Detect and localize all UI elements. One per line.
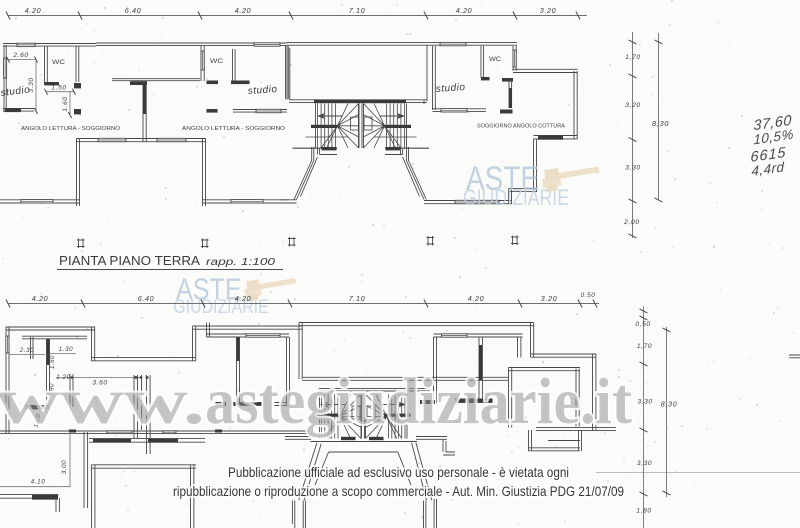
svg-text:PIANTA PIANO TERRA: PIANTA PIANO TERRA [59, 253, 200, 268]
svg-text:1.50: 1.50 [51, 85, 66, 92]
svg-text:8,30: 8,30 [661, 400, 677, 409]
svg-text:8,30: 8,30 [652, 119, 669, 128]
svg-text:2,00: 2,00 [623, 219, 640, 226]
svg-text:1,80: 1,80 [636, 508, 651, 515]
svg-text:1.30: 1.30 [59, 346, 73, 353]
svg-text:3,30: 3,30 [625, 165, 641, 172]
svg-text:www.: www. [0, 365, 205, 438]
svg-text:7.10: 7.10 [349, 6, 365, 15]
svg-text:Pubblicazione ufficiale ad esc: Pubblicazione ufficiale ad esclusivo uso… [228, 465, 569, 480]
svg-text:4.20: 4.20 [32, 294, 48, 303]
svg-text:7.10: 7.10 [349, 294, 365, 303]
svg-text:1,70: 1,70 [637, 343, 652, 350]
svg-text:ANGOLO LETTURA - SOGGIORNO: ANGOLO LETTURA - SOGGIORNO [182, 126, 286, 132]
svg-text:4.20: 4.20 [25, 6, 41, 15]
svg-text:4.20: 4.20 [468, 294, 484, 303]
svg-text:astegiudiziarie.it: astegiudiziarie.it [205, 365, 632, 438]
svg-text:2.30: 2.30 [19, 347, 34, 354]
svg-text:2.60: 2.60 [12, 52, 28, 59]
svg-text:ripubblicazione o riproduzione: ripubblicazione o riproduzione a scopo c… [173, 484, 624, 499]
svg-text:studio: studio [247, 84, 277, 97]
svg-text:0,50: 0,50 [635, 321, 650, 328]
svg-text:4.10: 4.10 [31, 479, 46, 486]
svg-text:4.20: 4.20 [235, 294, 251, 303]
svg-text:6.40: 6.40 [125, 6, 141, 15]
svg-text:1,70: 1,70 [625, 54, 641, 61]
svg-text:3,30: 3,30 [637, 399, 652, 406]
svg-text:ANGOLO LETTURA - SOGGIORNO: ANGOLO LETTURA - SOGGIORNO [21, 126, 121, 132]
svg-text:SOGGIORNO ANGOLO COTTURA: SOGGIORNO ANGOLO COTTURA [477, 124, 565, 130]
svg-text:WC: WC [489, 56, 502, 63]
svg-text:3,30: 3,30 [637, 460, 652, 467]
svg-text:4.20: 4.20 [235, 6, 251, 15]
svg-text:rapp. 1:100: rapp. 1:100 [206, 257, 276, 268]
svg-text:WC: WC [52, 59, 66, 66]
svg-text:studio: studio [435, 82, 465, 95]
svg-text:WC: WC [210, 58, 224, 65]
svg-text:1.60: 1.60 [62, 96, 69, 111]
svg-text:3.00: 3.00 [61, 460, 68, 474]
svg-text:4.20: 4.20 [456, 6, 472, 15]
svg-text:3,20: 3,20 [625, 102, 641, 109]
svg-text:6.40: 6.40 [138, 294, 154, 303]
svg-text:0.50: 0.50 [581, 292, 596, 299]
svg-text:3.20: 3.20 [541, 294, 557, 303]
svg-text:3.20: 3.20 [540, 6, 556, 15]
